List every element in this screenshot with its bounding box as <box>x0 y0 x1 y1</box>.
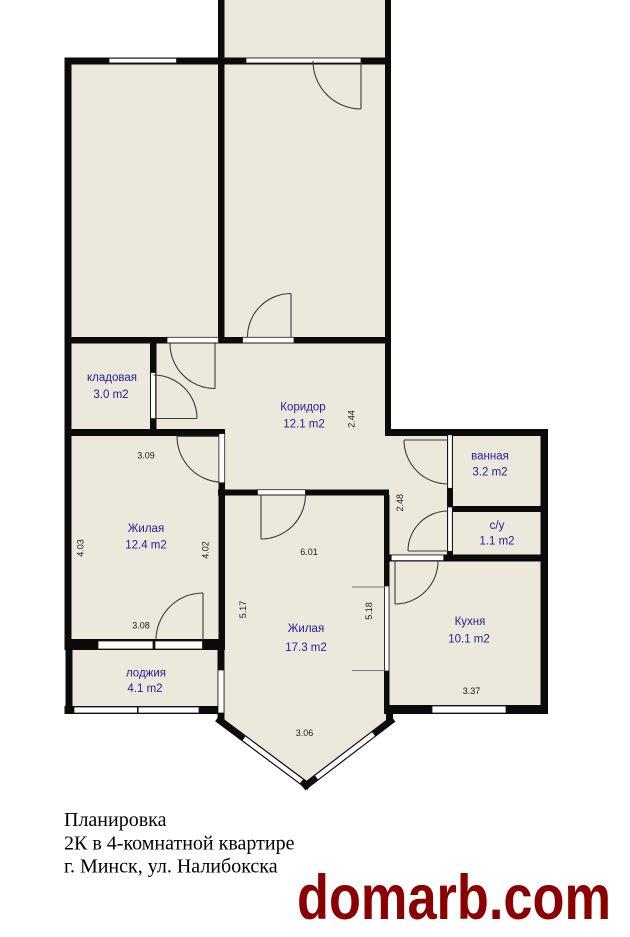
svg-text:3.0 m2: 3.0 m2 <box>93 389 128 401</box>
svg-text:Кухня: Кухня <box>455 616 486 628</box>
svg-text:2.44: 2.44 <box>346 410 356 428</box>
svg-text:5.18: 5.18 <box>364 602 374 620</box>
svg-text:6.01: 6.01 <box>300 547 318 557</box>
svg-text:3.06: 3.06 <box>296 728 314 738</box>
svg-text:2.48: 2.48 <box>395 494 405 512</box>
svg-text:domarb.com: domarb.com <box>297 863 611 933</box>
svg-text:3.08: 3.08 <box>132 621 150 631</box>
svg-text:1.1 m2: 1.1 m2 <box>479 536 514 548</box>
svg-text:12.4 m2: 12.4 m2 <box>125 540 167 552</box>
svg-text:5.17: 5.17 <box>238 601 248 619</box>
svg-text:2К в 4-комнатной квартире: 2К в 4-комнатной квартире <box>64 833 295 855</box>
svg-text:10.1 m2: 10.1 m2 <box>448 634 490 646</box>
svg-text:Жилая: Жилая <box>288 623 324 635</box>
svg-text:г. Минск, ул. Налибокска: г. Минск, ул. Налибокска <box>64 856 278 878</box>
svg-text:Коридор: Коридор <box>280 402 325 414</box>
svg-text:4.02: 4.02 <box>200 541 210 559</box>
svg-text:с/у: с/у <box>490 520 505 532</box>
svg-text:4.1 m2: 4.1 m2 <box>127 683 162 695</box>
svg-text:лоджия: лоджия <box>126 668 166 680</box>
svg-text:Жилая: Жилая <box>128 523 164 535</box>
svg-text:4.03: 4.03 <box>75 539 85 557</box>
svg-text:ванная: ванная <box>471 451 509 463</box>
svg-text:3.37: 3.37 <box>463 686 481 696</box>
svg-text:12.1 m2: 12.1 m2 <box>283 419 325 431</box>
svg-text:17.3 m2: 17.3 m2 <box>285 642 327 654</box>
svg-text:3.09: 3.09 <box>137 451 155 461</box>
svg-text:Планировка: Планировка <box>64 809 167 831</box>
svg-text:кладовая: кладовая <box>87 372 137 384</box>
svg-text:3.2 m2: 3.2 m2 <box>472 467 507 479</box>
